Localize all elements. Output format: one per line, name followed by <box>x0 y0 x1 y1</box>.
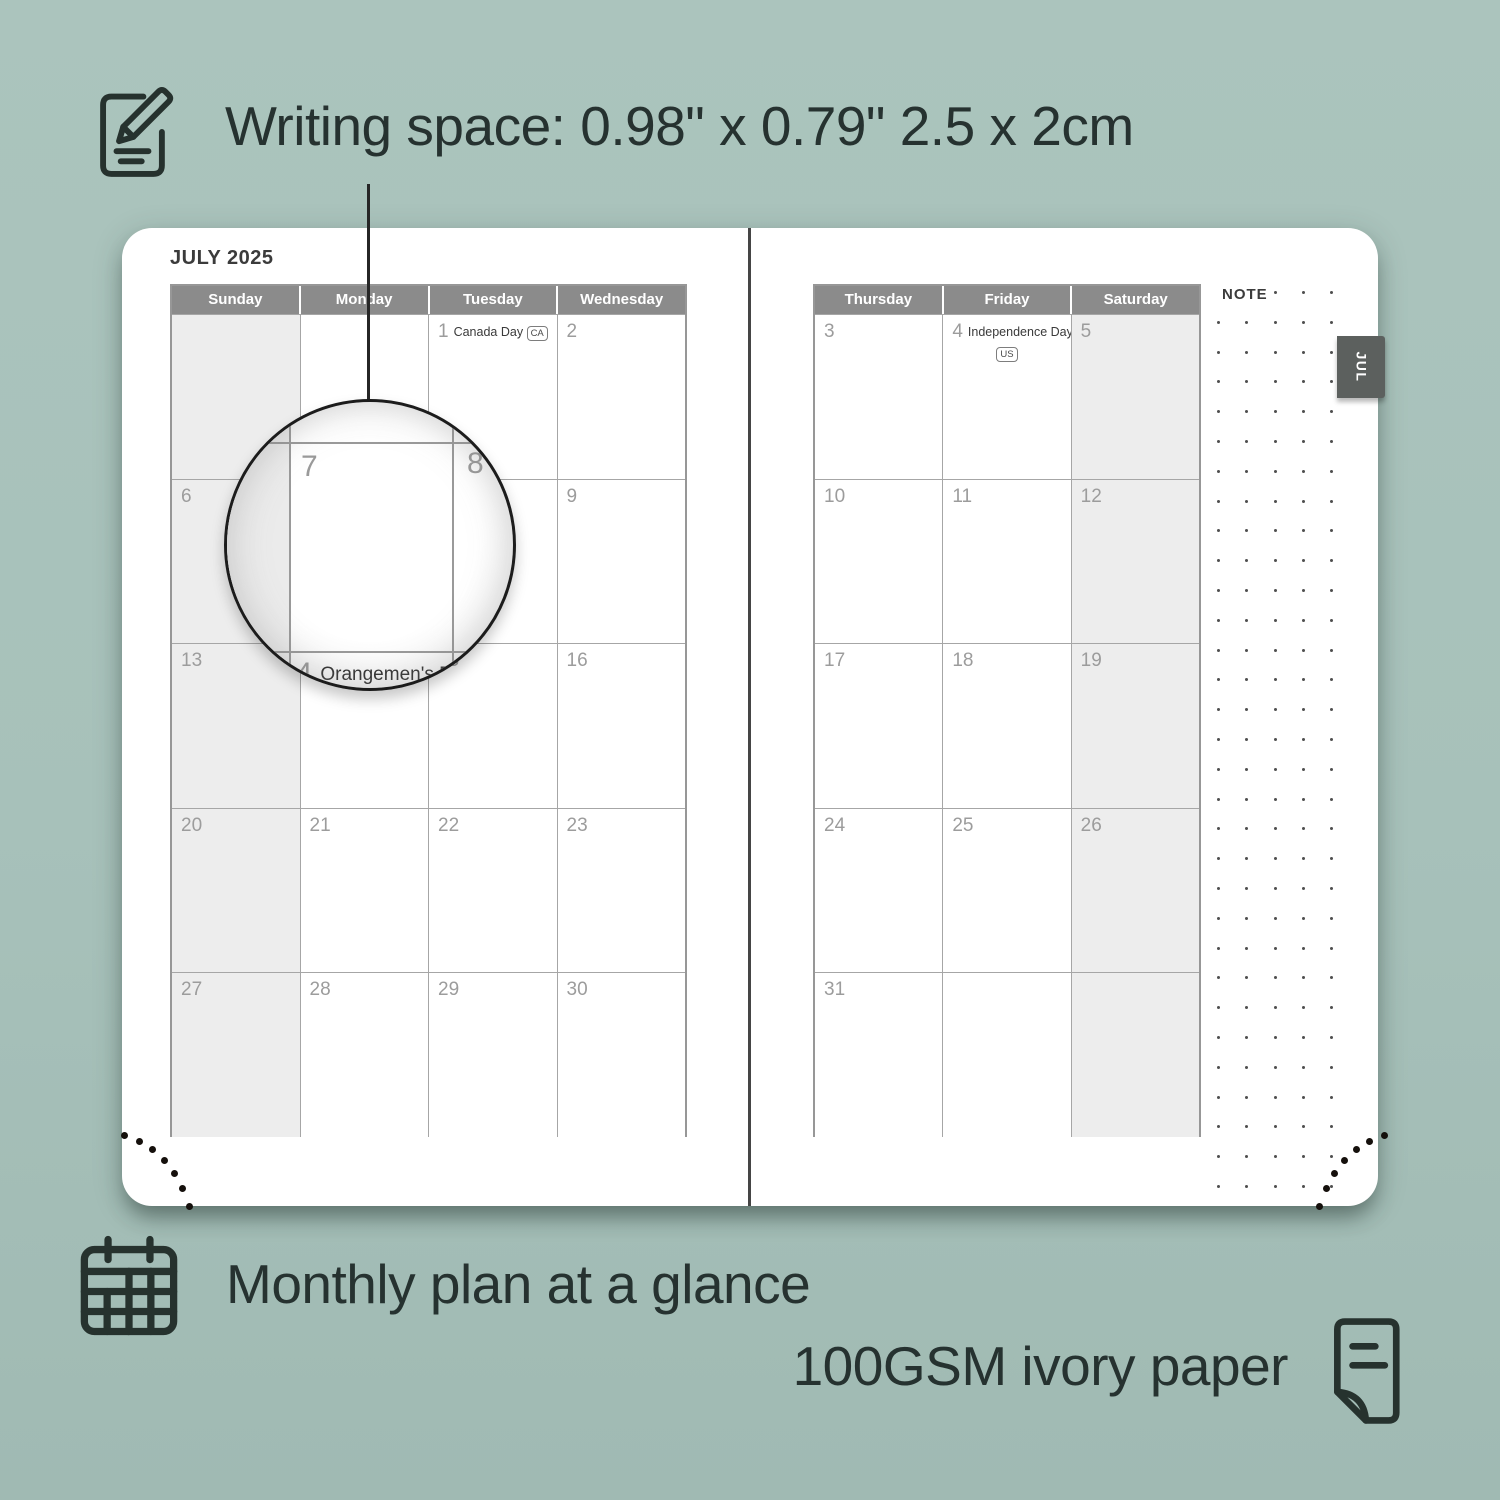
note-dot <box>1302 1155 1305 1158</box>
note-dot <box>1302 738 1305 741</box>
day-number: 13 <box>181 651 202 670</box>
note-dot <box>1245 589 1248 592</box>
month-tab-jul: JUL <box>1337 336 1385 398</box>
magnified-sunday-shade <box>227 402 289 688</box>
note-dot <box>1330 708 1333 711</box>
day-number: 27 <box>181 980 202 999</box>
calendar-cell: 26 <box>1071 808 1199 973</box>
note-dot <box>1274 649 1277 652</box>
note-dot <box>1217 738 1220 741</box>
note-dot <box>1330 529 1333 532</box>
planner-spread: JULY 2025 SundayMondayTuesdayWednesday1C… <box>122 228 1378 1206</box>
day-number: 11 <box>952 487 972 506</box>
note-dot <box>1330 1096 1333 1099</box>
note-dot <box>1217 708 1220 711</box>
note-dot <box>1245 410 1248 413</box>
note-dot <box>1330 1036 1333 1039</box>
note-dot <box>1330 827 1333 830</box>
note-dot <box>1245 649 1248 652</box>
note-dot <box>1217 1185 1220 1188</box>
note-dot <box>1245 619 1248 622</box>
day-number: 10 <box>824 487 845 506</box>
stitch-dot <box>186 1203 193 1210</box>
week-row: 20212223 <box>172 808 685 973</box>
note-dot <box>1302 410 1305 413</box>
note-dot <box>1302 798 1305 801</box>
note-dot <box>1217 529 1220 532</box>
note-dot <box>1330 589 1333 592</box>
note-dot <box>1245 321 1248 324</box>
day-number: 23 <box>567 816 588 835</box>
calendar-cell: 9 <box>557 479 686 644</box>
note-dot <box>1217 440 1220 443</box>
note-dot <box>1302 1096 1305 1099</box>
note-dot <box>1245 708 1248 711</box>
day-header: Wednesday <box>556 286 685 314</box>
note-dot <box>1274 589 1277 592</box>
note-dot <box>1302 589 1305 592</box>
stitch-dot <box>1353 1146 1360 1153</box>
note-dot <box>1302 917 1305 920</box>
note-dot <box>1330 1006 1333 1009</box>
magnified-day-number: 8 <box>467 449 484 479</box>
note-dot <box>1217 947 1220 950</box>
stitch-dot <box>1331 1170 1338 1177</box>
month-title: JULY 2025 <box>170 247 273 270</box>
magnified-grid-line <box>289 402 291 688</box>
note-dot <box>1245 440 1248 443</box>
note-dot <box>1245 500 1248 503</box>
magnified-grid-line <box>227 651 513 653</box>
magnified-day-number: 14 <box>279 659 312 689</box>
note-dot <box>1330 917 1333 920</box>
note-dot <box>1330 559 1333 562</box>
day-header-row: ThursdayFridaySaturday <box>815 286 1199 314</box>
day-header: Friday <box>942 286 1071 314</box>
month-tab-label: JUL <box>1353 352 1369 383</box>
note-dot <box>1245 529 1248 532</box>
day-number: 20 <box>181 816 202 835</box>
calendar-cell: 11 <box>942 479 1070 644</box>
note-dot <box>1245 1185 1248 1188</box>
note-dot <box>1274 1185 1277 1188</box>
magnifier-circle: 7 8 14 Orangemen's Day (NL) <box>224 399 516 691</box>
magnified-cell-view: 7 8 14 Orangemen's Day (NL) <box>227 402 513 688</box>
note-dot <box>1245 976 1248 979</box>
note-dot <box>1245 768 1248 771</box>
calendar-cell: 20 <box>172 808 300 973</box>
note-dot <box>1245 351 1248 354</box>
stitch-dot <box>1381 1132 1388 1139</box>
note-dot <box>1302 857 1305 860</box>
holiday-label: Canada Day CA <box>454 322 548 341</box>
calendar-cell: 4Independence DayUS <box>942 314 1070 479</box>
note-dot <box>1302 559 1305 562</box>
stitch-dot <box>121 1132 128 1139</box>
note-dot <box>1302 1185 1305 1188</box>
note-dot <box>1330 768 1333 771</box>
note-dot <box>1274 500 1277 503</box>
calendar-cell: 21 <box>300 808 429 973</box>
note-dot <box>1274 738 1277 741</box>
note-dot <box>1274 976 1277 979</box>
note-dot <box>1245 738 1248 741</box>
note-dot <box>1217 678 1220 681</box>
note-dot <box>1274 678 1277 681</box>
calendar-cell: 12 <box>1071 479 1199 644</box>
note-dot <box>1217 1006 1220 1009</box>
writing-space-caption: Writing space: 0.98" x 0.79" 2.5 x 2cm <box>225 94 1134 158</box>
note-dot <box>1302 380 1305 383</box>
note-dot <box>1274 708 1277 711</box>
day-number: 6 <box>181 487 192 506</box>
note-dot <box>1245 1066 1248 1069</box>
day-number: 9 <box>567 487 578 506</box>
stitch-dot <box>1316 1203 1323 1210</box>
calendar-cell: 30 <box>557 972 686 1137</box>
note-dot <box>1217 1036 1220 1039</box>
note-dot <box>1274 351 1277 354</box>
day-number: 3 <box>824 322 835 341</box>
note-dot <box>1302 827 1305 830</box>
note-dot <box>1302 768 1305 771</box>
week-row: 27282930 <box>172 972 685 1137</box>
week-row: 34Independence DayUS5 <box>815 314 1199 479</box>
note-dot <box>1274 410 1277 413</box>
note-dot <box>1217 500 1220 503</box>
note-dot <box>1330 1185 1333 1188</box>
day-number: 31 <box>824 980 845 999</box>
week-row: 31 <box>815 972 1199 1137</box>
note-dot <box>1274 1155 1277 1158</box>
note-dot <box>1274 917 1277 920</box>
note-dot <box>1302 619 1305 622</box>
spine-divider <box>748 228 751 1206</box>
note-dot <box>1217 410 1220 413</box>
day-number: 28 <box>310 980 331 999</box>
day-number: 21 <box>310 816 331 835</box>
note-dot <box>1217 917 1220 920</box>
stitch-dot <box>136 1138 143 1145</box>
note-dot <box>1217 857 1220 860</box>
stitch-dot <box>1323 1185 1330 1192</box>
note-dot <box>1217 649 1220 652</box>
note-dot <box>1217 619 1220 622</box>
day-header: Thursday <box>815 286 942 314</box>
day-number: 29 <box>438 980 459 999</box>
note-dot <box>1302 1036 1305 1039</box>
note-dot <box>1302 1066 1305 1069</box>
day-number: 16 <box>567 651 588 670</box>
note-dot <box>1330 351 1333 354</box>
note-dot <box>1274 887 1277 890</box>
calendar-cell <box>1071 972 1199 1137</box>
note-dot <box>1330 410 1333 413</box>
calendar-grid-icon <box>78 1235 180 1337</box>
day-number: 25 <box>952 816 973 835</box>
monthly-plan-caption: Monthly plan at a glance <box>226 1252 810 1316</box>
note-dot <box>1274 321 1277 324</box>
day-number: 12 <box>1081 487 1102 506</box>
note-dot <box>1302 678 1305 681</box>
note-dot <box>1245 1036 1248 1039</box>
note-dot <box>1330 1066 1333 1069</box>
note-dot <box>1302 1125 1305 1128</box>
note-dot <box>1217 559 1220 562</box>
note-dot <box>1330 798 1333 801</box>
note-dot <box>1330 1155 1333 1158</box>
note-dot <box>1217 768 1220 771</box>
note-dot <box>1302 470 1305 473</box>
paper-sheet-icon <box>1320 1314 1406 1428</box>
calendar-cell <box>942 972 1070 1137</box>
note-dot <box>1274 1066 1277 1069</box>
day-number: 26 <box>1081 816 1102 835</box>
note-dot <box>1245 857 1248 860</box>
paper-caption: 100GSM ivory paper <box>793 1334 1288 1398</box>
calendar-cell: 31 <box>815 972 942 1137</box>
note-dot <box>1274 827 1277 830</box>
note-dot <box>1302 529 1305 532</box>
calendar-grid-right: ThursdayFridaySaturday34Independence Day… <box>813 284 1201 1137</box>
note-dot <box>1302 500 1305 503</box>
note-dot <box>1274 619 1277 622</box>
stitch-dot <box>161 1157 168 1164</box>
note-dot <box>1274 1006 1277 1009</box>
note-dot <box>1330 947 1333 950</box>
week-row: 171819 <box>815 643 1199 808</box>
note-dot <box>1330 291 1333 294</box>
note-dot <box>1330 380 1333 383</box>
note-dot <box>1274 1036 1277 1039</box>
note-dot <box>1245 1006 1248 1009</box>
note-dot <box>1302 351 1305 354</box>
day-number: 17 <box>824 651 845 670</box>
note-dot <box>1330 619 1333 622</box>
note-dot <box>1245 1125 1248 1128</box>
day-header: Tuesday <box>428 286 557 314</box>
day-header: Saturday <box>1070 286 1199 314</box>
note-dot <box>1217 976 1220 979</box>
day-number: 5 <box>1081 322 1092 341</box>
day-header-row: SundayMondayTuesdayWednesday <box>172 286 685 314</box>
note-dot <box>1245 380 1248 383</box>
note-dot <box>1217 1096 1220 1099</box>
note-dot <box>1245 559 1248 562</box>
note-dot <box>1217 470 1220 473</box>
note-dot-grid <box>1217 291 1342 1201</box>
calendar-cell: 25 <box>942 808 1070 973</box>
note-dot <box>1330 649 1333 652</box>
note-dot <box>1217 351 1220 354</box>
note-dot <box>1217 1066 1220 1069</box>
calendar-cell: 23 <box>557 808 686 973</box>
notepad-pencil-icon <box>93 80 177 188</box>
note-dot <box>1302 440 1305 443</box>
note-dot <box>1302 708 1305 711</box>
note-dot <box>1302 321 1305 324</box>
calendar-cell: 29 <box>428 972 557 1137</box>
note-dot <box>1245 917 1248 920</box>
day-number: 22 <box>438 816 459 835</box>
note-dot <box>1302 649 1305 652</box>
note-dot <box>1245 470 1248 473</box>
note-dot <box>1217 798 1220 801</box>
note-dot <box>1274 291 1277 294</box>
note-dot <box>1330 887 1333 890</box>
country-badge: CA <box>527 326 548 341</box>
note-dot <box>1274 440 1277 443</box>
note-dot <box>1217 589 1220 592</box>
note-dot <box>1217 887 1220 890</box>
week-row: 242526 <box>815 808 1199 973</box>
note-dot <box>1330 321 1333 324</box>
calendar-cell: 22 <box>428 808 557 973</box>
calendar-cell: 3 <box>815 314 942 479</box>
note-dot <box>1274 1096 1277 1099</box>
stitch-dot <box>171 1170 178 1177</box>
day-number: 1 <box>438 322 449 341</box>
day-number: 19 <box>1081 651 1102 670</box>
note-dot <box>1274 947 1277 950</box>
note-dot <box>1330 738 1333 741</box>
note-dot <box>1274 529 1277 532</box>
note-dot <box>1302 1006 1305 1009</box>
note-dot <box>1245 827 1248 830</box>
note-dot <box>1330 1125 1333 1128</box>
note-dot <box>1274 798 1277 801</box>
calendar-cell: 28 <box>300 972 429 1137</box>
day-header: Sunday <box>172 286 299 314</box>
calendar-cell: 10 <box>815 479 942 644</box>
day-header: Monday <box>299 286 428 314</box>
magnified-day-number: 7 <box>301 452 318 482</box>
note-dot <box>1245 887 1248 890</box>
calendar-cell: 24 <box>815 808 942 973</box>
note-dot <box>1274 559 1277 562</box>
stitch-dot <box>1341 1157 1348 1164</box>
day-number: 24 <box>824 816 845 835</box>
product-image: Writing space: 0.98" x 0.79" 2.5 x 2cm J… <box>0 0 1500 1500</box>
day-number: 18 <box>952 651 973 670</box>
note-dot <box>1330 857 1333 860</box>
note-dot <box>1274 857 1277 860</box>
calendar-cell: 17 <box>815 643 942 808</box>
holiday-label: Independence Day <box>968 322 1071 341</box>
note-dot <box>1330 470 1333 473</box>
note-dot <box>1217 380 1220 383</box>
note-dot <box>1245 1096 1248 1099</box>
note-dot <box>1274 380 1277 383</box>
magnified-grid-line <box>452 402 454 688</box>
calendar-cell: 5 <box>1071 314 1199 479</box>
stitch-dot <box>1366 1138 1373 1145</box>
note-dot <box>1330 976 1333 979</box>
calendar-cell: 19 <box>1071 643 1199 808</box>
note-dot <box>1274 470 1277 473</box>
note-dot <box>1330 440 1333 443</box>
note-dot <box>1274 1125 1277 1128</box>
magnified-holiday-label: Orangemen's Day <box>320 659 473 686</box>
calendar-cell: 16 <box>557 643 686 808</box>
note-dot <box>1330 678 1333 681</box>
day-number: 4 <box>952 322 963 341</box>
note-dot <box>1217 1155 1220 1158</box>
note-dot <box>1274 768 1277 771</box>
country-badge: US <box>996 347 1017 362</box>
note-dot <box>1302 947 1305 950</box>
note-dot <box>1330 500 1333 503</box>
week-row: 101112 <box>815 479 1199 644</box>
day-number: 2 <box>567 322 578 341</box>
calendar-cell: 18 <box>942 643 1070 808</box>
note-dot <box>1217 321 1220 324</box>
day-number: 30 <box>567 980 588 999</box>
magnified-grid-line <box>227 442 513 444</box>
annotation-pointer-line <box>367 184 370 400</box>
note-dot <box>1217 827 1220 830</box>
note-dot <box>1245 798 1248 801</box>
note-dot <box>1302 291 1305 294</box>
calendar-cell: 2 <box>557 314 686 479</box>
note-dot <box>1217 1125 1220 1128</box>
note-dot <box>1302 976 1305 979</box>
note-dot <box>1302 887 1305 890</box>
note-dot <box>1245 1155 1248 1158</box>
note-dot <box>1245 678 1248 681</box>
note-dot <box>1245 947 1248 950</box>
calendar-cell: 27 <box>172 972 300 1137</box>
